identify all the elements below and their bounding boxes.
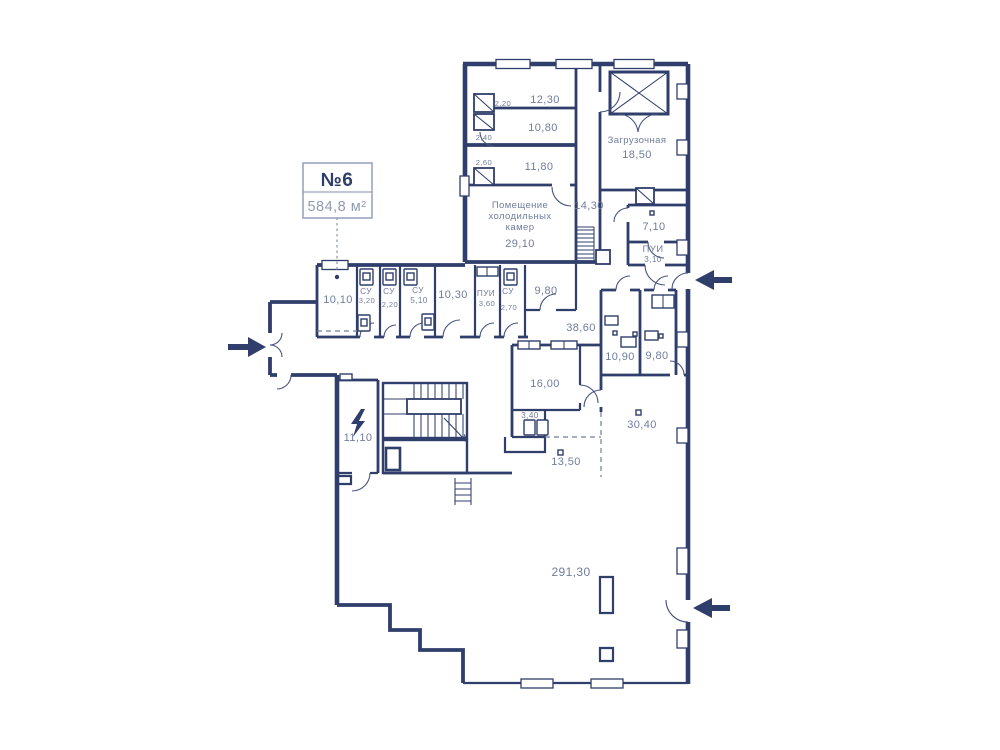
room-label-10-80: 10,80 xyxy=(528,122,558,134)
room-name-zagruzochnaya: Загрузочная xyxy=(608,135,667,146)
room-name-su-3: СУ xyxy=(412,286,424,295)
room-label-38-60: 38,60 xyxy=(566,322,596,334)
room-label-16-00: 16,00 xyxy=(530,378,560,390)
room-label-5-10: 5,10 xyxy=(410,296,428,305)
room-label-2-20b: 2,20 xyxy=(382,300,398,309)
room-label-2-70: 2,70 xyxy=(501,303,517,312)
room-label-11-80: 11,80 xyxy=(525,161,554,173)
room-label-12-30: 12,30 xyxy=(530,94,560,106)
floor-plan-drawing: 12,30 2,20 10,80 2,40 11,80 2,60 Загрузо… xyxy=(0,0,1000,750)
room-name-cold-2: холодильных xyxy=(488,211,551,222)
room-name-pui-2: ПУИ xyxy=(477,289,495,298)
room-label-9-80b: 9,80 xyxy=(645,350,668,362)
room-label-10-10: 10,10 xyxy=(323,294,353,306)
room-label-2-20a: 2,20 xyxy=(495,99,511,108)
elevator-shaft-icon xyxy=(610,72,668,114)
room-label-291-30: 291,30 xyxy=(551,565,590,579)
callout-area-value: 584,8 м² xyxy=(307,199,366,215)
room-label-2-60: 2,60 xyxy=(476,158,492,167)
room-name-cold-3: камер xyxy=(506,222,535,233)
room-label-14-30: 14,30 xyxy=(574,200,604,212)
room-name-su-2: СУ xyxy=(383,287,395,296)
room-name-su-4: СУ xyxy=(502,287,514,296)
room-label-3-20: 3,20 xyxy=(359,296,375,305)
entrance-arrow-icon xyxy=(693,598,730,618)
room-label-10-30: 10,30 xyxy=(438,289,468,301)
area-callout: №6 584,8 м² xyxy=(303,163,372,279)
room-label-9-80a: 9,80 xyxy=(534,285,557,297)
callout-number: №6 xyxy=(321,170,354,191)
room-label-2-40: 2,40 xyxy=(476,133,492,142)
room-name-cold-1: Помещение xyxy=(492,200,548,211)
floor-plan-canvas: 12,30 2,20 10,80 2,40 11,80 2,60 Загрузо… xyxy=(0,0,1000,750)
room-label-30-40: 30,40 xyxy=(627,419,657,431)
callout-leader-dot xyxy=(335,275,339,279)
room-label-29-10: 29,10 xyxy=(505,238,535,250)
room-label-13-50: 13,50 xyxy=(551,456,581,468)
entrance-arrow-icon xyxy=(695,270,732,290)
room-label-11-10: 11,10 xyxy=(344,432,373,444)
entrance-arrow-icon xyxy=(228,337,266,357)
entrance-arrows xyxy=(228,270,732,618)
room-label-3-60: 3,60 xyxy=(479,299,495,308)
room-label-18-50: 18,50 xyxy=(622,149,652,161)
room-label-10-90: 10,90 xyxy=(605,351,635,363)
room-label-3-40: 3,40 xyxy=(521,411,539,420)
room-label-3-10: 3,10 xyxy=(644,255,662,264)
room-name-pui-1: ПУИ xyxy=(643,244,664,255)
room-name-su-1: СУ xyxy=(360,287,372,296)
room-label-7-10: 7,10 xyxy=(642,221,665,233)
